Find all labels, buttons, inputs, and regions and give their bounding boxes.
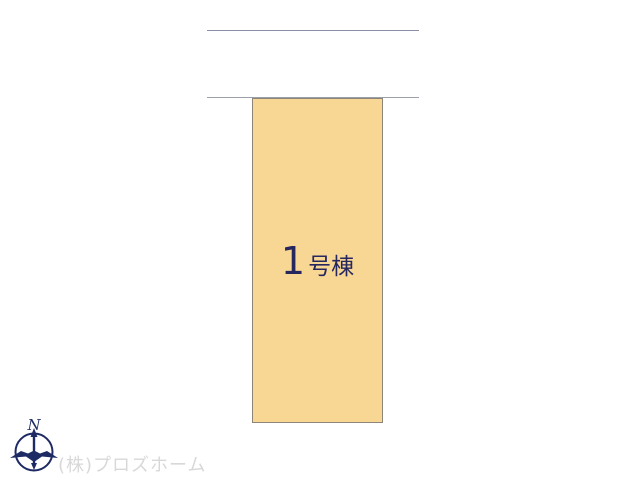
north-compass-icon: N <box>9 415 59 473</box>
building-suffix: 号棟 <box>308 256 354 279</box>
building-lot-label: 1 号棟 <box>281 242 354 280</box>
compass-tail <box>31 463 37 470</box>
site-plan: 1 号棟 N (株)プロズホーム <box>0 0 640 480</box>
building-number: 1 <box>281 242 305 280</box>
company-watermark: (株)プロズホーム <box>58 451 207 477</box>
building-lot-1: 1 号棟 <box>252 98 383 423</box>
boundary-line-top <box>207 30 419 31</box>
